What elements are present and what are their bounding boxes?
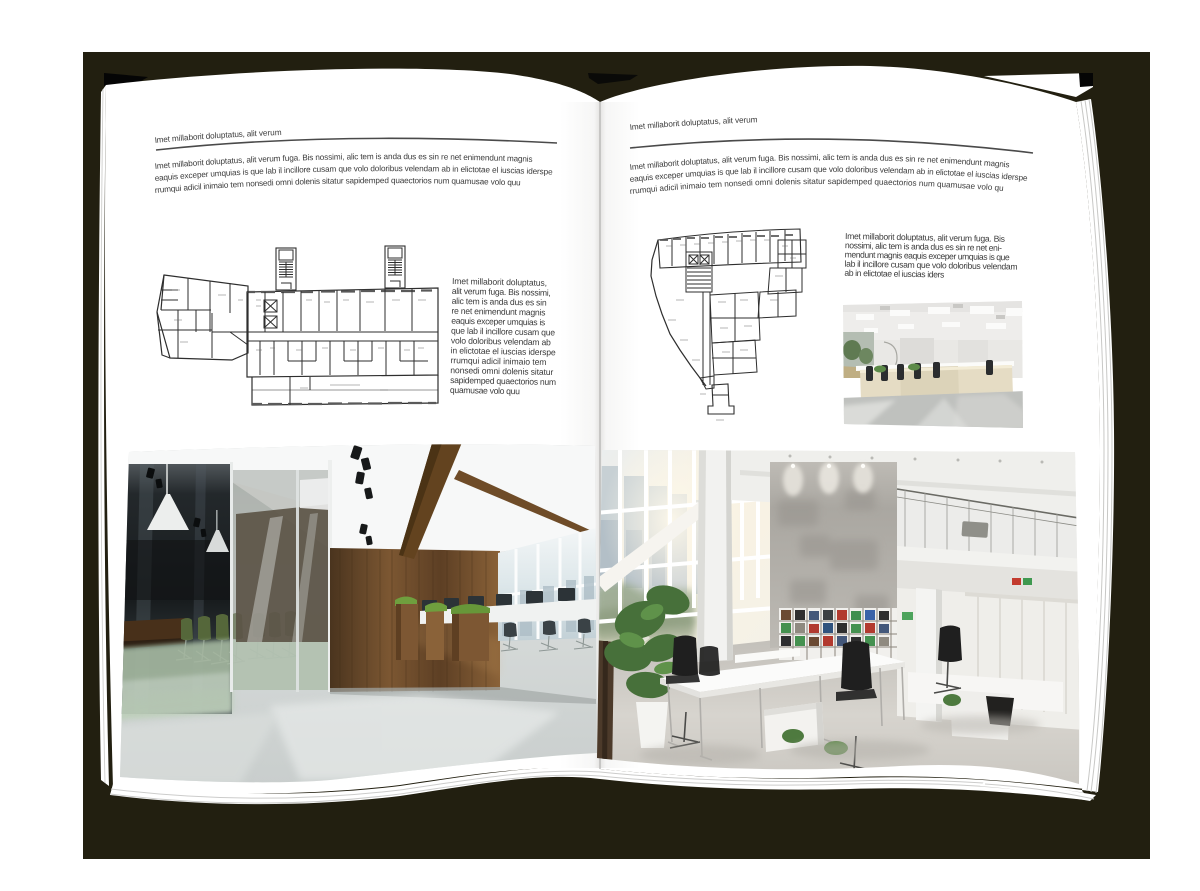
svg-text:quamusae volo quu: quamusae volo quu (450, 385, 520, 396)
svg-text:ab in elictotae el iuscias ide: ab in elictotae el iuscias iders (844, 268, 944, 280)
